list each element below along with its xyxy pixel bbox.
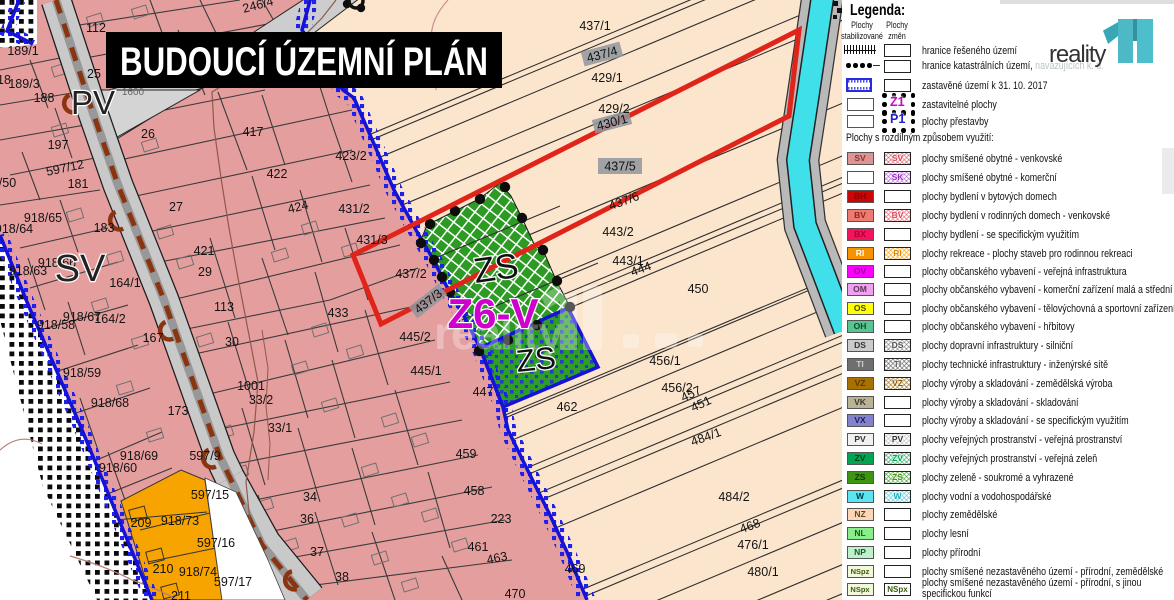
svg-text:429/1: 429/1 (591, 71, 622, 85)
svg-text:437/2: 437/2 (395, 267, 426, 281)
svg-text:SV: SV (55, 248, 106, 290)
svg-text:597/15: 597/15 (191, 488, 229, 502)
svg-text:27: 27 (169, 200, 183, 214)
svg-text:Z6-V: Z6-V (447, 290, 538, 337)
svg-text:421: 421 (194, 244, 215, 258)
svg-text:30: 30 (225, 335, 239, 349)
svg-text:484/2: 484/2 (718, 490, 749, 504)
svg-text:189/3: 189/3 (8, 77, 39, 91)
svg-text:445/2: 445/2 (399, 330, 430, 344)
svg-text:188: 188 (34, 91, 55, 105)
svg-text:447: 447 (473, 385, 494, 399)
svg-text:112: 112 (86, 21, 106, 35)
svg-text:445/1: 445/1 (410, 364, 441, 378)
svg-text:181: 181 (68, 177, 89, 191)
svg-text:433: 433 (328, 306, 349, 320)
svg-text:209: 209 (131, 516, 152, 530)
svg-text:PV: PV (71, 84, 115, 121)
svg-text:918/74: 918/74 (179, 565, 217, 579)
svg-text:113: 113 (214, 300, 234, 314)
svg-text:597/16: 597/16 (197, 536, 235, 550)
svg-text:26: 26 (141, 127, 155, 141)
svg-text:450: 450 (688, 282, 709, 296)
svg-text:469: 469 (565, 562, 586, 576)
svg-text:34: 34 (303, 490, 317, 504)
svg-text:918/60: 918/60 (99, 461, 137, 475)
svg-text:211: 211 (171, 589, 191, 600)
svg-text:918/59: 918/59 (63, 366, 101, 380)
svg-text:476/1: 476/1 (737, 538, 768, 552)
svg-text:36: 36 (300, 512, 314, 526)
svg-text:458: 458 (464, 484, 485, 498)
svg-text:480/1: 480/1 (747, 565, 778, 579)
svg-text:1600: 1600 (122, 87, 145, 98)
svg-text:462: 462 (557, 400, 578, 414)
svg-text:BUDOUCÍ ÚZEMNÍ PLÁN: BUDOUCÍ ÚZEMNÍ PLÁN (120, 38, 488, 84)
svg-text:197: 197 (48, 138, 69, 152)
svg-text:918/68: 918/68 (91, 396, 129, 410)
svg-text:597/9: 597/9 (189, 449, 220, 463)
svg-text:37: 37 (310, 545, 324, 559)
svg-text:431/3: 431/3 (356, 233, 387, 247)
svg-text:33/2: 33/2 (249, 393, 273, 407)
svg-text:456/1: 456/1 (649, 354, 680, 368)
svg-text:7/50: 7/50 (0, 176, 16, 190)
svg-text:1001: 1001 (237, 379, 265, 393)
svg-text:461: 461 (468, 540, 489, 554)
svg-text:167: 167 (143, 331, 164, 345)
svg-text:417: 417 (243, 125, 264, 139)
svg-text:ZS: ZS (514, 340, 557, 379)
svg-text:38: 38 (335, 570, 349, 584)
svg-text:29: 29 (198, 265, 212, 279)
svg-text:431/2: 431/2 (338, 202, 369, 216)
svg-text:437/5: 437/5 (604, 160, 635, 174)
svg-text:437/1: 437/1 (579, 19, 610, 33)
svg-text:18: 18 (0, 73, 11, 87)
svg-text:189/1: 189/1 (7, 44, 38, 58)
svg-text:173: 173 (168, 404, 189, 418)
svg-text:422: 422 (267, 167, 288, 181)
svg-text:164/1: 164/1 (109, 276, 140, 290)
svg-text:429/2: 429/2 (598, 102, 629, 116)
svg-text:223: 223 (491, 512, 512, 526)
svg-text:918/64: 918/64 (0, 222, 33, 236)
svg-text:423/2: 423/2 (335, 149, 366, 163)
svg-text:470: 470 (505, 587, 526, 600)
svg-text:459: 459 (456, 447, 477, 461)
svg-text:25: 25 (87, 67, 101, 81)
svg-text:ZS: ZS (471, 246, 521, 291)
svg-text:183: 183 (94, 221, 115, 235)
svg-text:918/73: 918/73 (161, 514, 199, 528)
svg-text:33/1: 33/1 (268, 421, 292, 435)
svg-text:597/17: 597/17 (214, 575, 252, 589)
svg-text:210: 210 (153, 562, 174, 576)
svg-text:918/58: 918/58 (37, 318, 75, 332)
svg-text:443/2: 443/2 (602, 225, 633, 239)
